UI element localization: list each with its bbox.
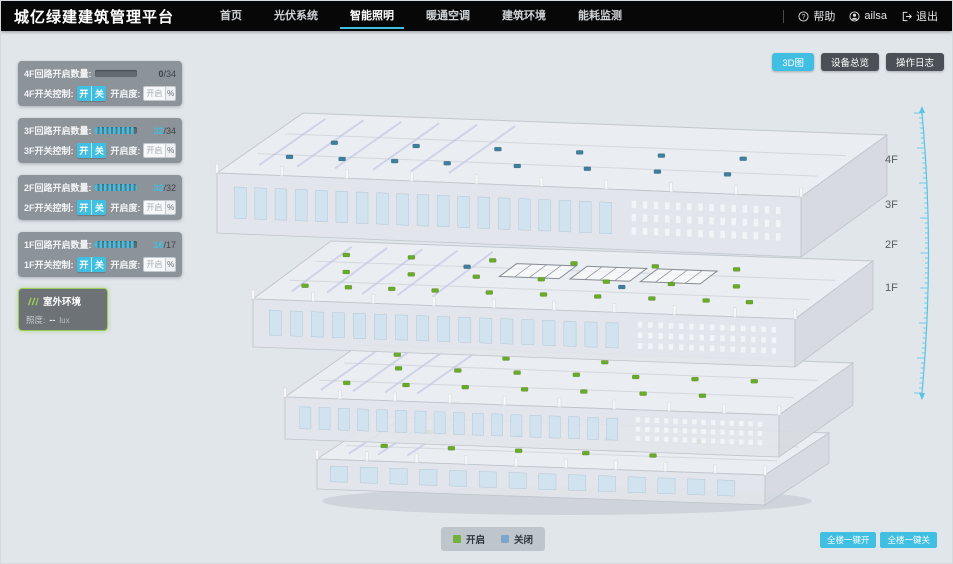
illuminance-unit: lux [59, 316, 69, 325]
username-label: ailsa [864, 10, 887, 22]
dim-label: 开启度: [110, 87, 140, 100]
circuit-count-value: 32/34 [153, 126, 176, 136]
logout-button[interactable]: 退出 [901, 8, 938, 24]
nav-item[interactable]: 能耗监测 [571, 1, 629, 31]
view-button[interactable]: 操作日志 [886, 53, 944, 71]
help-button[interactable]: ? 帮助 [798, 8, 835, 24]
circuit-progress-bar [95, 127, 137, 134]
all-off-button[interactable]: 全楼一键关 [880, 532, 937, 548]
circuit-row: 1F回路开启数量: 16/17 [24, 238, 176, 251]
floor-panel: 3F回路开启数量: 32/34 3F开关控制: 开 关 开启度: % [18, 118, 182, 163]
circuit-count-label: 4F回路开启数量: [24, 67, 92, 80]
legend-on-label: 开启 [466, 532, 485, 546]
nav-item[interactable]: 建筑环境 [495, 1, 553, 31]
platform-title: 城亿绿建建筑管理平台 [1, 6, 174, 27]
legend-off-label: 关闭 [514, 532, 533, 546]
logout-icon [901, 11, 912, 22]
dim-label: 开启度: [110, 201, 140, 214]
nav-item[interactable]: 暖通空调 [419, 1, 477, 31]
legend-on-item: 开启 [453, 532, 485, 546]
dim-input[interactable] [143, 143, 165, 158]
floor-label-3f: 3F [885, 199, 898, 211]
dim-input[interactable] [143, 86, 165, 101]
dim-label: 开启度: [110, 258, 140, 271]
all-on-button[interactable]: 全楼一键开 [820, 532, 877, 548]
switch-on-button[interactable]: 开 [77, 257, 92, 272]
circuit-row: 3F回路开启数量: 32/34 [24, 124, 176, 137]
circuit-row: 2F回路开启数量: 32/32 [24, 181, 176, 194]
view-switcher: 3D图设备总览操作日志 [772, 53, 944, 71]
circuit-count-label: 3F回路开启数量: [24, 124, 92, 137]
switch-on-button[interactable]: 开 [77, 200, 92, 215]
status-legend: 开启 关闭 [441, 527, 545, 551]
circuit-progress-fill [95, 184, 137, 191]
main-nav: 首页光伏系统智能照明暖通空调建筑环境能耗监测 [204, 1, 638, 31]
switch-group: 开 关 [77, 143, 107, 158]
circuit-row: 4F回路开启数量: 0/34 [24, 67, 176, 80]
floor-label-2f: 2F [885, 239, 898, 251]
user-avatar-icon [849, 11, 860, 22]
floor-label-4f: 4F [885, 154, 898, 166]
switch-on-button[interactable]: 开 [77, 86, 92, 101]
floor-label-1f: 1F [885, 282, 898, 294]
outdoor-env-panel: 室外环境 照度: -- lux [18, 288, 108, 331]
circuit-count-label: 2F回路开启数量: [24, 181, 92, 194]
circuit-progress-bar [95, 70, 137, 77]
switch-off-button[interactable]: 关 [91, 257, 106, 272]
switch-control-label: 1F开关控制: [24, 258, 74, 271]
outdoor-title: 室外环境 [43, 294, 81, 308]
switch-group: 开 关 [77, 200, 107, 215]
switch-group: 开 关 [77, 86, 107, 101]
circuit-count-value: 0/34 [158, 69, 176, 79]
circuit-progress-fill [95, 241, 135, 248]
user-menu[interactable]: ailsa [849, 10, 887, 22]
nav-item[interactable]: 首页 [213, 1, 249, 31]
circuit-count-value: 16/17 [153, 240, 176, 250]
help-label: 帮助 [813, 8, 835, 24]
illuminance-value: -- [49, 315, 55, 325]
percent-button[interactable]: % [165, 143, 176, 158]
environment-stripes-icon [26, 297, 39, 306]
view-button[interactable]: 3D图 [772, 53, 814, 71]
dim-input[interactable] [143, 200, 165, 215]
circuit-progress-bar [95, 184, 137, 191]
user-area: ? 帮助 ailsa 退出 [783, 8, 952, 24]
switch-group: 开 关 [77, 257, 107, 272]
logout-label: 退出 [916, 8, 938, 24]
floor-panel: 2F回路开启数量: 32/32 2F开关控制: 开 关 开启度: % [18, 175, 182, 220]
switch-row: 1F开关控制: 开 关 开启度: % [24, 257, 176, 272]
header-divider [783, 10, 784, 23]
percent-button[interactable]: % [165, 200, 176, 215]
switch-control-label: 2F开关控制: [24, 201, 74, 214]
switch-on-button[interactable]: 开 [77, 143, 92, 158]
circuit-count-label: 1F回路开启数量: [24, 238, 92, 251]
global-buttons: 全楼一键开 全楼一键关 [820, 532, 937, 548]
switch-control-label: 3F开关控制: [24, 144, 74, 157]
outdoor-metric-row: 照度: -- lux [26, 314, 100, 326]
dim-label: 开启度: [110, 144, 140, 157]
view-button[interactable]: 设备总览 [821, 53, 879, 71]
switch-off-button[interactable]: 关 [91, 86, 106, 101]
switch-off-button[interactable]: 关 [91, 143, 106, 158]
top-header: 城亿绿建建筑管理平台 首页光伏系统智能照明暖通空调建筑环境能耗监测 ? 帮助 a… [1, 1, 952, 31]
svg-text:?: ? [802, 13, 806, 20]
dim-input[interactable] [143, 257, 165, 272]
help-circle-icon: ? [798, 11, 809, 22]
percent-button[interactable]: % [165, 257, 176, 272]
percent-button[interactable]: % [165, 86, 176, 101]
floor-control-panels: 4F回路开启数量: 0/34 4F开关控制: 开 关 开启度: % 3F回路开启… [18, 61, 182, 277]
switch-row: 3F开关控制: 开 关 开启度: % [24, 143, 176, 158]
switch-control-label: 4F开关控制: [24, 87, 74, 100]
switch-off-button[interactable]: 关 [91, 200, 106, 215]
nav-item[interactable]: 光伏系统 [267, 1, 325, 31]
nav-item[interactable]: 智能照明 [343, 1, 401, 31]
illuminance-label: 照度: [26, 314, 45, 326]
app-root: 城亿绿建建筑管理平台 首页光伏系统智能照明暖通空调建筑环境能耗监测 ? 帮助 a… [0, 0, 953, 564]
circuit-progress-fill [95, 127, 135, 134]
outdoor-title-row: 室外环境 [26, 294, 100, 308]
floor-panel: 1F回路开启数量: 16/17 1F开关控制: 开 关 开启度: % [18, 232, 182, 277]
on-swatch-icon [453, 535, 461, 543]
switch-row: 2F开关控制: 开 关 开启度: % [24, 200, 176, 215]
circuit-progress-bar [95, 241, 137, 248]
floor-panel: 4F回路开启数量: 0/34 4F开关控制: 开 关 开启度: % [18, 61, 182, 106]
switch-row: 4F开关控制: 开 关 开启度: % [24, 86, 176, 101]
legend-off-item: 关闭 [501, 532, 533, 546]
circuit-count-value: 32/32 [153, 183, 176, 193]
off-swatch-icon [501, 535, 509, 543]
